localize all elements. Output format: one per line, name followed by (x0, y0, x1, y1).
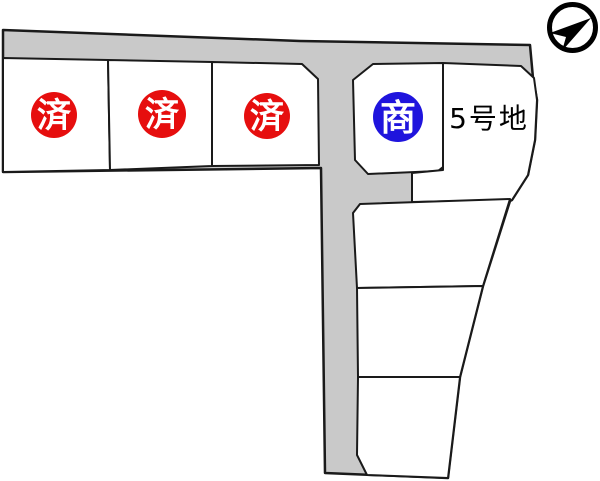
sold-badge-label-3: 済 (250, 97, 285, 137)
north-arrow-icon (550, 5, 596, 52)
sold-badge-1: 済 (31, 92, 77, 138)
sold-badge-3: 済 (244, 93, 290, 139)
lot-8-shape (357, 377, 460, 478)
sold-badge-label-1: 済 (37, 96, 72, 136)
lot-6-shape (353, 199, 510, 288)
sold-badge-label-2: 済 (145, 95, 180, 135)
negotiation-badge: 商 (373, 92, 423, 142)
negotiation-badge-label: 商 (380, 98, 416, 139)
lot-5-label: 5号地 (449, 102, 529, 135)
subdivision-map: 済 済 済 商 5号地 (0, 0, 600, 481)
sold-badge-2: 済 (138, 90, 186, 138)
lot-7-shape (357, 286, 483, 377)
